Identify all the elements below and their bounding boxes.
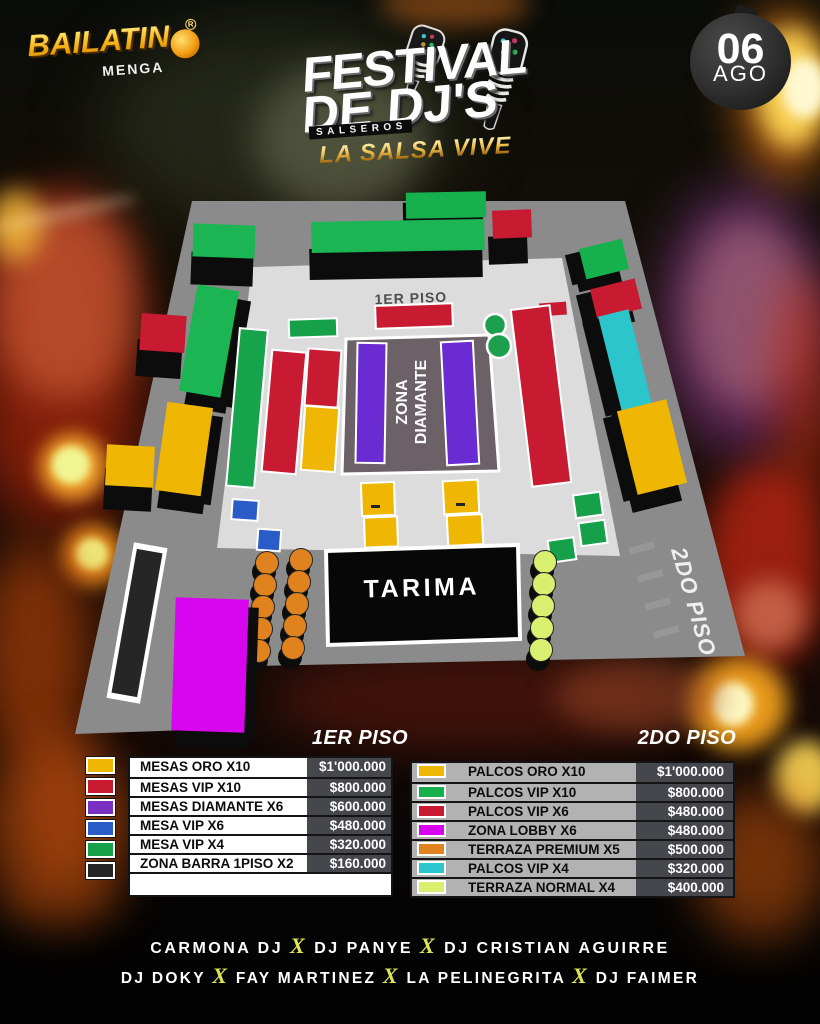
svg-text:TARIMA: TARIMA <box>363 572 480 603</box>
